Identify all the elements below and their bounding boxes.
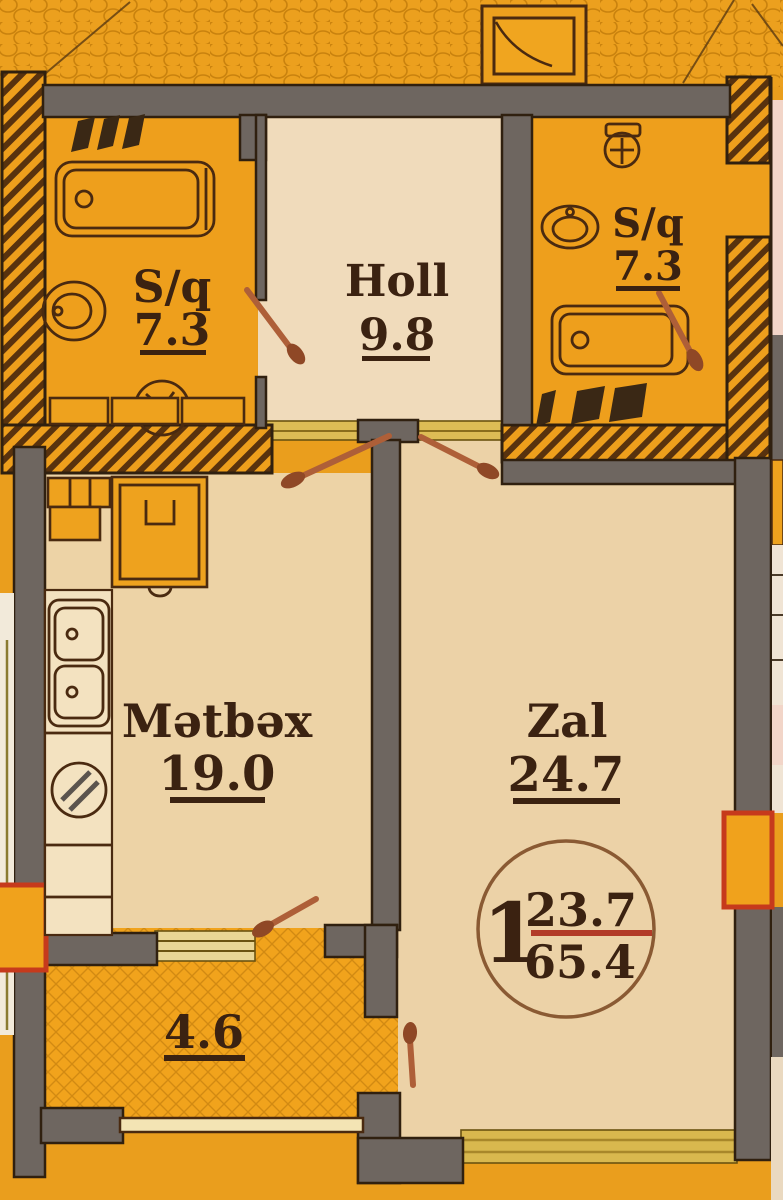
- window-marker-left: [0, 885, 46, 970]
- room-area: 24.7: [508, 747, 625, 803]
- balcony-doorway-band: [155, 931, 255, 961]
- stove-icon: [112, 477, 207, 596]
- area-underline: [170, 797, 265, 803]
- room-name: S/q: [612, 200, 683, 247]
- floor-plan: S/q 7.3 Holl 9.8 S/q 7.3 Mətbəx 19.0 Zal…: [0, 0, 783, 1200]
- bath-left-cabinet: [50, 398, 108, 424]
- area-underline: [362, 356, 430, 361]
- area-underline: [616, 286, 680, 291]
- wall-kitchen-bottom-stub: [45, 933, 157, 965]
- window-marker-right: [724, 813, 772, 907]
- balcony-railing: [120, 1118, 363, 1132]
- room-area: 9.8: [359, 310, 436, 361]
- living-window-band: [461, 1130, 737, 1163]
- unit-area-bottom: 65.4: [524, 935, 636, 989]
- neighbor-strip-right-window: [772, 460, 783, 545]
- room-label-balcony: 4.6: [164, 1005, 245, 1061]
- wall-corner-upper-L-v: [365, 925, 397, 1017]
- kitchen-cabinets: [48, 478, 110, 540]
- area-underline: [140, 350, 206, 355]
- room-label-bath-left: S/q 7.3: [133, 262, 212, 356]
- bath-left-cabinet: [112, 398, 178, 424]
- wall-kitchen-living-divider: [372, 440, 400, 930]
- neighbor-strip-right-gray: [772, 335, 783, 460]
- neighbor-strip-right-gray2: [772, 907, 783, 1057]
- wall-top: [43, 85, 730, 117]
- neighbor-strip-right-light: [772, 545, 783, 705]
- wall-living-top-band: [502, 460, 737, 484]
- wall-hatched-left-column: [2, 72, 45, 458]
- room-label-bath-right: S/q 7.3: [612, 200, 683, 291]
- bath-left-cabinet: [182, 398, 244, 424]
- room-area: 7.3: [134, 305, 211, 356]
- wall-hatched-right-vertical: [727, 237, 770, 462]
- neighbor-strip-right-pink: [772, 100, 783, 335]
- area-underline: [513, 798, 620, 804]
- neighbor-strip-right-light2: [772, 765, 783, 813]
- room-name: Zal: [527, 694, 608, 748]
- neighbor-strip-right-pink2: [772, 705, 783, 765]
- wall-right-exterior: [735, 458, 771, 1160]
- neighbor-strip-right-beige: [771, 1057, 783, 1200]
- wall-bath-left-divider-lower: [256, 377, 266, 428]
- wall-hatched-right-top-column: [727, 77, 770, 163]
- room-area: 19.0: [159, 746, 276, 802]
- room-area: 4.6: [164, 1005, 244, 1059]
- kitchen-counter: [45, 590, 112, 935]
- unit-area-top: 23.7: [525, 883, 637, 937]
- room-name: Holl: [345, 256, 449, 307]
- wall-left-exterior: [14, 447, 45, 1177]
- vent-shaft-icon: [482, 6, 586, 84]
- wall-bath-left-divider-upper: [256, 115, 266, 300]
- wall-corner-lower-L-h: [358, 1138, 463, 1183]
- room-name: Mətbəx: [122, 694, 313, 748]
- room-area: 7.3: [613, 243, 683, 290]
- wall-bath-right-divider: [502, 115, 532, 425]
- area-underline: [164, 1055, 245, 1061]
- wall-balcony-bottom-stub: [41, 1108, 123, 1143]
